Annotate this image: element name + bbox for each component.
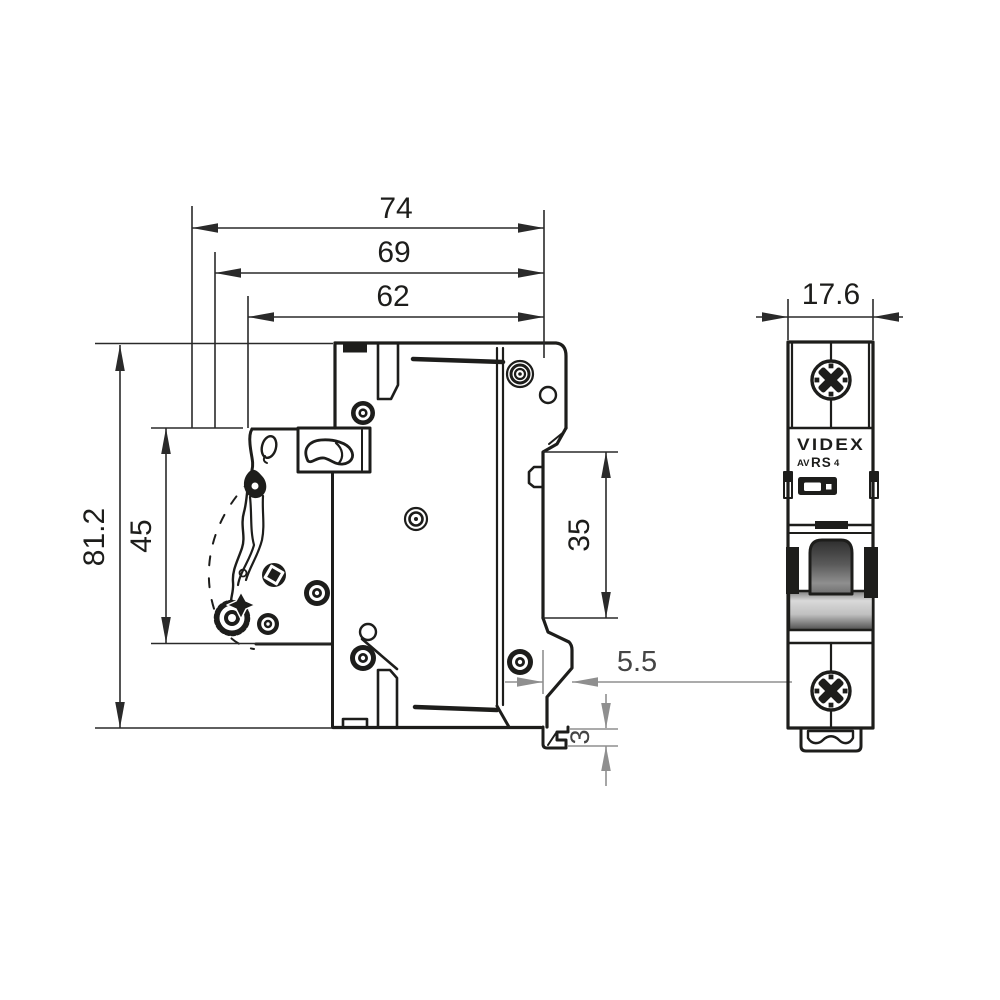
toggle-bracket-left: [786, 547, 799, 594]
model-prefix: AV: [797, 458, 810, 469]
rivet-dark-5: [507, 649, 533, 675]
model-series: RS: [811, 455, 832, 470]
ridge-top: [413, 359, 503, 362]
rivet-rings-2: [405, 508, 427, 530]
toggle-slot-bar: [789, 591, 873, 630]
toggle-bracket-right: [864, 547, 878, 598]
brand-logo: VIDEX: [797, 435, 865, 454]
top-notch: [343, 344, 367, 353]
circuit-breaker-dimension-drawing: 74 69 62 81.2 45: [0, 0, 1000, 1000]
latch-pivot-hole: [252, 483, 259, 490]
indicator-window: [798, 477, 837, 495]
dim-label-62: 62: [376, 280, 409, 313]
rivet-rings-1: [507, 361, 533, 387]
toggle-top-notch: [815, 521, 848, 529]
square-hole-screw: [262, 563, 286, 587]
rivet-dark-2: [304, 580, 330, 606]
toggle-handle: [810, 540, 852, 594]
ridge-bottom: [415, 707, 497, 710]
toggle-lever: [306, 440, 353, 464]
gear-hub-hole: [228, 614, 236, 622]
dim-label-5-5: 5.5: [617, 646, 657, 678]
dim-label-35: 35: [563, 518, 596, 551]
canvas-background: [0, 0, 1000, 1000]
dim-label-69: 69: [377, 236, 410, 269]
model-number: 4: [834, 458, 840, 469]
dim-label-3: 3: [565, 729, 595, 744]
phillips-screw-top: [812, 361, 850, 399]
technical-drawing-page: 74 69 62 81.2 45: [0, 0, 1000, 1000]
dim-label-45: 45: [125, 519, 158, 552]
rivet-dark-1: [257, 613, 279, 635]
phillips-screw-bottom: [812, 672, 850, 710]
rivet-dark-3: [351, 401, 375, 425]
dim-label-74: 74: [379, 192, 412, 225]
dim-label-17-6: 17.6: [802, 278, 860, 311]
dim-label-81-2: 81.2: [78, 508, 111, 566]
